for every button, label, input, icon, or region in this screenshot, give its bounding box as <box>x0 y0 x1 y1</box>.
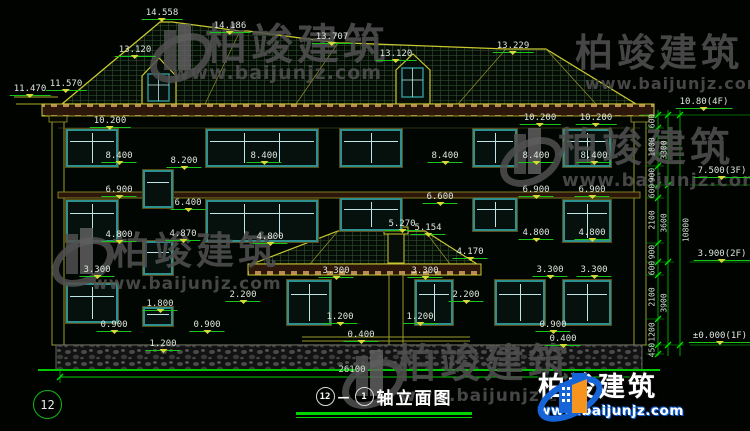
level-label: 6.900 <box>518 185 553 197</box>
window-graphic <box>563 280 611 325</box>
level-label: 3.300 <box>532 265 567 277</box>
level-label: 2.200 <box>225 290 260 302</box>
window-graphic <box>495 280 545 325</box>
chain-dim-text: 3300 <box>660 140 669 159</box>
level-label: 8.200 <box>166 156 201 168</box>
chain-dim-text: 900 <box>648 245 657 259</box>
watermark-brand: 柏竣建筑 <box>575 34 743 72</box>
chain-dim-text: 10800 <box>682 218 691 242</box>
level-label: 6.900 <box>574 185 609 197</box>
chain-dim-text: 600 <box>648 114 657 128</box>
level-label: 13.120 <box>376 49 417 61</box>
chain-dim-text: 3900 <box>660 293 669 312</box>
level-label: 8.400 <box>101 151 136 163</box>
level-label: 0.900 <box>96 320 131 332</box>
chain-dim-text: 2100 <box>648 287 657 306</box>
level-label: 3.300 <box>318 266 353 278</box>
level-label: 10.200 <box>90 116 131 128</box>
chain-dim-text: 900 <box>648 168 657 182</box>
chain-dim-text: 1800 <box>648 137 657 156</box>
window-graphic <box>143 170 173 208</box>
overall-dim-text: 26100 <box>338 365 365 375</box>
level-label: 5.154 <box>410 223 445 235</box>
level-label: 13.120 <box>115 45 156 57</box>
level-label: 14.558 <box>142 8 183 20</box>
level-label: 6.400 <box>170 198 205 210</box>
level-label: 4.800 <box>574 228 609 240</box>
axis-bubble-label: 12 <box>40 398 54 412</box>
level-label: 13.707 <box>312 32 353 44</box>
window-graphic <box>473 198 517 231</box>
brand-logo: 柏竣建筑 www.baijunjz.com <box>534 363 748 429</box>
level-label: 0.900 <box>189 320 224 332</box>
level-label: 0.400 <box>545 334 580 346</box>
level-label: 14.186 <box>210 21 251 33</box>
level-label: 10.200 <box>576 113 617 125</box>
brand-logo-icon <box>534 363 612 429</box>
level-label: 3.300 <box>407 266 442 278</box>
level-label: 3.900(2F) <box>694 249 750 261</box>
level-label: 4.170 <box>452 247 487 259</box>
level-label: 2.200 <box>448 290 483 302</box>
level-label: 4.800 <box>101 230 136 242</box>
level-label: 3.300 <box>79 265 114 277</box>
chain-dim-text: 600 <box>648 184 657 198</box>
level-label: 8.400 <box>576 151 611 163</box>
level-label: 4.800 <box>252 232 287 244</box>
level-label: 8.400 <box>518 151 553 163</box>
title-axis-start-bubble: 12 <box>316 387 335 406</box>
level-label: 7.500(3F) <box>694 166 750 178</box>
level-label: ±0.000(1F) <box>689 331 750 343</box>
level-label: 1.800 <box>142 299 177 311</box>
level-label: 0.900 <box>535 320 570 332</box>
watermark-url: www.baijunjz.com <box>585 76 750 92</box>
level-label: 4.870 <box>165 229 200 241</box>
level-label: 13.229 <box>493 41 534 53</box>
drawing-title-text: 轴立面图 <box>377 384 453 409</box>
level-label: 11.470 <box>10 84 51 96</box>
level-label: 8.400 <box>427 151 462 163</box>
level-label: 1.200 <box>322 312 357 324</box>
level-label: 8.400 <box>246 151 281 163</box>
level-label: 6.900 <box>101 185 136 197</box>
chain-dim-text: 2100 <box>648 210 657 229</box>
watermark-url: www.baijunjz.com <box>172 64 382 83</box>
title-underline-thick <box>296 412 472 415</box>
window-graphic <box>340 129 402 167</box>
title-underline-thin <box>296 417 472 418</box>
level-label: 1.200 <box>402 312 437 324</box>
chain-dim-text: 450 <box>648 343 657 357</box>
chain-dim-text: 600 <box>648 261 657 275</box>
drawing-title-block: 12 — 1 轴立面图 <box>296 384 472 418</box>
elevation-drawing-canvas: 柏竣建筑 www.baijunjz.com 柏竣建筑 www.baijunjz.… <box>0 0 750 431</box>
title-dash: — <box>338 390 352 404</box>
axis-bubble-12: 12 <box>33 390 62 419</box>
level-label: 11.570 <box>46 79 87 91</box>
level-label: 1.200 <box>145 339 180 351</box>
level-label: 10.200 <box>520 113 561 125</box>
level-label: 10.80(4F) <box>676 97 733 109</box>
title-axis-end-bubble: 1 <box>355 387 374 406</box>
level-label: 0.400 <box>343 330 378 342</box>
chain-dim-text: 3600 <box>660 213 669 232</box>
chain-dim-text: 1200 <box>648 322 657 341</box>
level-label: 6.600 <box>422 192 457 204</box>
level-label: 4.800 <box>518 228 553 240</box>
level-label: 3.300 <box>576 265 611 277</box>
